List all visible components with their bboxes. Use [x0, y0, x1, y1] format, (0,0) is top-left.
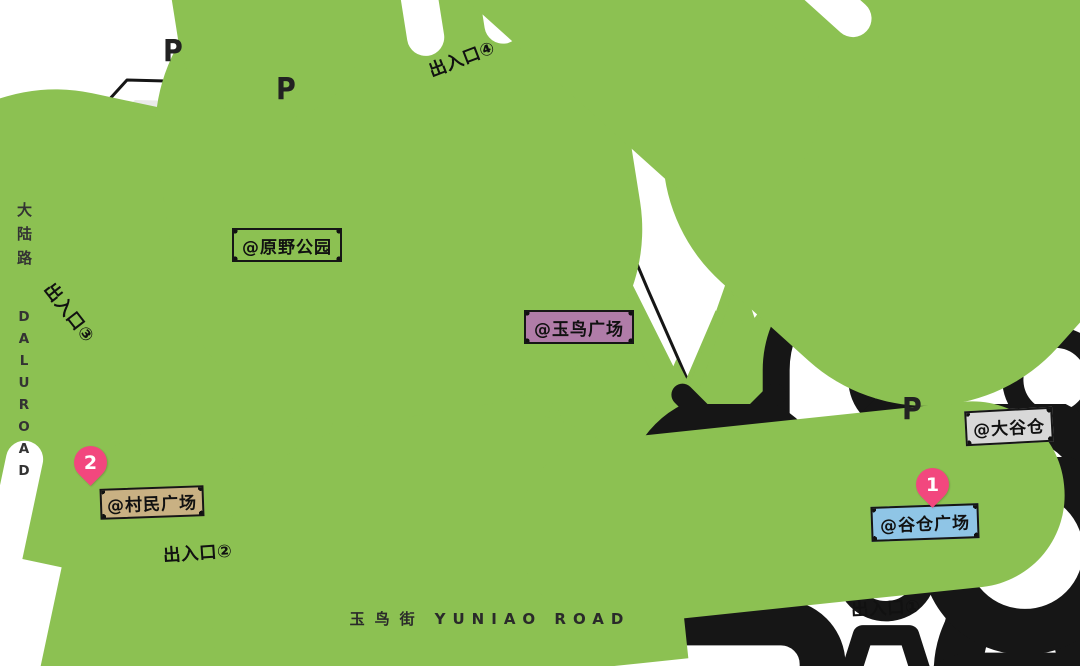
place-tag-yuniao-plaza[interactable]: @玉鸟广场	[524, 310, 634, 344]
parking-icon: P	[276, 72, 296, 107]
road-name-en: YUNIAO ROAD	[435, 610, 631, 628]
map-pin-2[interactable]: 2	[67, 439, 114, 486]
exit-label-1: 出入口①	[850, 593, 921, 622]
place-tag-gucang-plaza[interactable]: @谷仓广场	[870, 503, 979, 542]
road-name-cn: 玉鸟街	[350, 610, 425, 628]
parking-icon: P	[163, 34, 183, 69]
place-tag-yuanye-park[interactable]: @原野公园	[232, 228, 342, 262]
road-name-cn: 大陆路	[15, 202, 33, 274]
map-pin-1[interactable]: 1	[909, 461, 956, 508]
guide-map: 大陆路 DALUROAD 玉鸟街YUNIAO ROAD P P P 出入口④ 出…	[0, 0, 1080, 666]
road-label-yuniao: 玉鸟街YUNIAO ROAD	[340, 608, 640, 629]
parking-icon: P	[902, 392, 922, 427]
exit-label-2: 出入口②	[162, 538, 233, 568]
place-tag-cunmin-plaza[interactable]: @村民广场	[99, 485, 204, 520]
place-tag-dagucang[interactable]: @大谷仓	[964, 407, 1054, 447]
road-label-daluroad: 大陆路 DALUROAD	[14, 202, 35, 485]
pin-number: 2	[74, 446, 107, 479]
pin-number: 1	[916, 468, 949, 501]
road-name-en: DALUROAD	[16, 309, 32, 485]
